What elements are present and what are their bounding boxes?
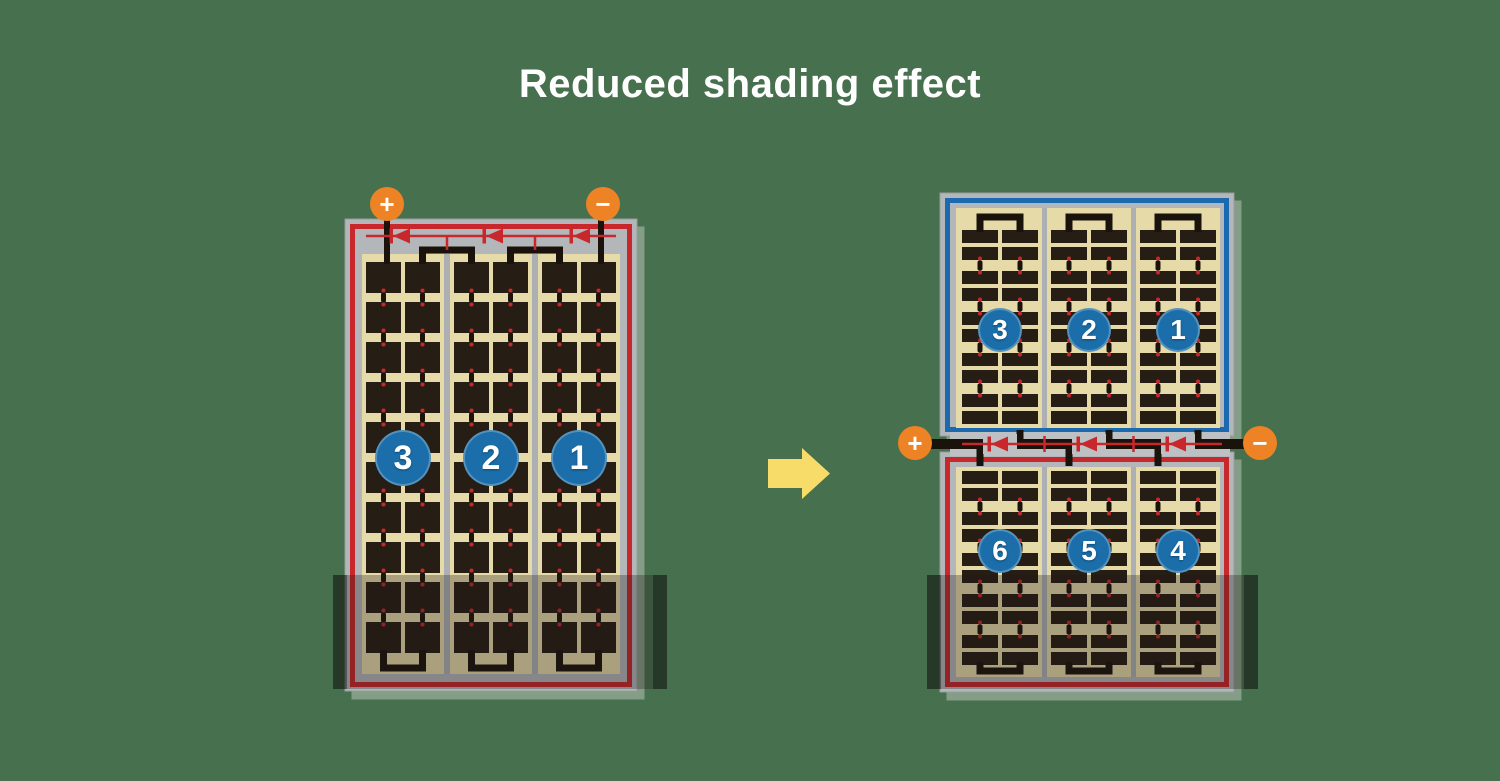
solder-dot [509, 543, 513, 547]
cell-connector [381, 533, 386, 543]
cell-connector [596, 493, 601, 503]
solar-cell [542, 502, 577, 533]
solder-dot [470, 423, 474, 427]
cell-connector [1107, 302, 1112, 312]
cell-connector [1018, 502, 1023, 512]
cell-connector [596, 533, 601, 543]
cell-connector [420, 293, 425, 303]
solar-cell [542, 382, 577, 413]
solder-dot [597, 343, 601, 347]
cell-connector [469, 533, 474, 543]
solder-dot [1196, 312, 1200, 316]
solder-dot [597, 329, 601, 333]
solar-cell [405, 502, 440, 533]
solder-dot [1156, 271, 1160, 275]
diode-bar-icon [1166, 437, 1170, 452]
cell-connector [1067, 261, 1072, 271]
solder-dot [509, 529, 513, 533]
solder-dot [509, 569, 513, 573]
cell-connector [508, 293, 513, 303]
left-negative-terminal: − [586, 187, 620, 221]
solar-cell [454, 542, 489, 573]
half-cell [1140, 471, 1176, 484]
solder-dot [597, 289, 601, 293]
cell-connector [1107, 502, 1112, 512]
solder-dot [1196, 271, 1200, 275]
cell-connector [1156, 502, 1161, 512]
right-bottom-circuit-5: 5 [1067, 529, 1111, 573]
solar-cell [366, 342, 401, 373]
solder-dot [1018, 512, 1022, 516]
solder-dot [558, 329, 562, 333]
solder-dot [978, 312, 982, 316]
solar-cell [581, 262, 616, 293]
diode-bar-icon [988, 437, 992, 452]
solar-cell [493, 262, 528, 293]
solder-dot [382, 383, 386, 387]
solder-dot [597, 543, 601, 547]
cell-connector [1018, 261, 1023, 271]
cell-connector [1067, 302, 1072, 312]
cell-connector [381, 333, 386, 343]
solar-cell [542, 542, 577, 573]
solar-cell [405, 542, 440, 573]
cell-connector [557, 413, 562, 423]
solar-cell [493, 542, 528, 573]
solder-dot [470, 569, 474, 573]
cell-connector [381, 373, 386, 383]
half-cell [1002, 411, 1038, 424]
solder-dot [1196, 353, 1200, 357]
right-top-circuit-1: 1 [1156, 308, 1200, 352]
solder-dot [597, 529, 601, 533]
solder-dot [421, 383, 425, 387]
cell-connector [596, 333, 601, 343]
right-top-divider-1 [1042, 208, 1047, 428]
half-cell [962, 471, 998, 484]
solder-dot [558, 569, 562, 573]
solder-dot [1107, 271, 1111, 275]
cell-connector [557, 493, 562, 503]
left-circuit-2: 2 [463, 430, 519, 486]
solar-cell [581, 502, 616, 533]
solar-cell [405, 382, 440, 413]
solder-dot [509, 383, 513, 387]
right-top-circuit-2: 2 [1067, 308, 1111, 352]
solder-dot [978, 353, 982, 357]
solar-cell [581, 542, 616, 573]
solar-cell [366, 502, 401, 533]
half-cell [1140, 411, 1176, 424]
solder-dot [470, 529, 474, 533]
solder-dot [470, 303, 474, 307]
solder-dot [1018, 353, 1022, 357]
solder-dot [470, 503, 474, 507]
solder-dot [1018, 298, 1022, 302]
cell-connector [1018, 343, 1023, 353]
solder-dot [1067, 512, 1071, 516]
solar-cell [493, 342, 528, 373]
solder-dot [1156, 394, 1160, 398]
solder-dot [421, 503, 425, 507]
solder-dot [382, 543, 386, 547]
right-positive-terminal: + [898, 426, 932, 460]
cell-connector [1196, 261, 1201, 271]
solder-dot [1067, 394, 1071, 398]
solder-dot [382, 303, 386, 307]
solder-dot [382, 409, 386, 413]
solder-dot [978, 380, 982, 384]
cell-connector [508, 413, 513, 423]
cell-connector [381, 493, 386, 503]
solar-cell [405, 262, 440, 293]
solar-cell [493, 302, 528, 333]
cell-connector [557, 373, 562, 383]
solder-dot [421, 289, 425, 293]
solder-dot [558, 383, 562, 387]
cell-connector [420, 373, 425, 383]
solder-dot [421, 343, 425, 347]
cell-connector [420, 333, 425, 343]
solder-dot [597, 303, 601, 307]
solder-dot [1018, 498, 1022, 502]
solder-dot [421, 303, 425, 307]
solar-cell [493, 502, 528, 533]
solder-dot [1196, 394, 1200, 398]
solder-dot [382, 289, 386, 293]
solder-dot [558, 409, 562, 413]
diode-bar-icon [390, 229, 394, 244]
solar-cell [366, 382, 401, 413]
solder-dot [558, 369, 562, 373]
solder-dot [1067, 353, 1071, 357]
solder-dot [1156, 257, 1160, 261]
solder-dot [597, 503, 601, 507]
solder-dot [470, 383, 474, 387]
solder-dot [509, 489, 513, 493]
diode-bar-icon [570, 229, 574, 244]
diode-bar-icon [483, 229, 487, 244]
solder-dot [1107, 298, 1111, 302]
solder-dot [509, 503, 513, 507]
solder-dot [978, 512, 982, 516]
solder-dot [1107, 312, 1111, 316]
solder-dot [1196, 298, 1200, 302]
solder-dot [1067, 298, 1071, 302]
solar-cell [454, 502, 489, 533]
solar-cell [454, 342, 489, 373]
solder-dot [597, 569, 601, 573]
solder-dot [978, 271, 982, 275]
left-circuit-3: 3 [375, 430, 431, 486]
solder-dot [558, 289, 562, 293]
half-cell [1002, 471, 1038, 484]
solder-dot [558, 503, 562, 507]
solder-dot [1196, 380, 1200, 384]
solar-cell [542, 342, 577, 373]
solder-dot [382, 503, 386, 507]
solder-dot [421, 423, 425, 427]
solder-dot [382, 423, 386, 427]
half-cell [1051, 471, 1087, 484]
cell-connector [978, 343, 983, 353]
solder-dot [1107, 498, 1111, 502]
cell-connector [508, 533, 513, 543]
solder-dot [470, 343, 474, 347]
half-cell [962, 411, 998, 424]
cell-connector [508, 493, 513, 503]
solder-dot [1107, 257, 1111, 261]
cell-connector [1067, 343, 1072, 353]
solder-dot [1067, 257, 1071, 261]
solder-dot [382, 569, 386, 573]
cell-connector [1156, 261, 1161, 271]
solar-cell [366, 542, 401, 573]
half-cell [1180, 471, 1216, 484]
right-top-divider-2 [1131, 208, 1136, 428]
solder-dot [1107, 353, 1111, 357]
cell-connector [1196, 302, 1201, 312]
cell-connector [381, 293, 386, 303]
solar-cell [542, 262, 577, 293]
solder-dot [382, 343, 386, 347]
cell-connector [1067, 384, 1072, 394]
right-negative-terminal: − [1243, 426, 1277, 460]
solder-dot [1107, 380, 1111, 384]
solar-cell [366, 302, 401, 333]
cell-connector [1156, 302, 1161, 312]
solder-dot [382, 329, 386, 333]
solder-dot [421, 369, 425, 373]
cell-connector [1156, 384, 1161, 394]
solder-dot [558, 529, 562, 533]
cell-connector [381, 413, 386, 423]
solder-dot [1107, 394, 1111, 398]
right-top-circuit-3: 3 [978, 308, 1022, 352]
solar-cell [581, 302, 616, 333]
solder-dot [1196, 498, 1200, 502]
half-cell [1051, 411, 1087, 424]
transition-arrow-icon [768, 448, 830, 499]
solder-dot [1156, 312, 1160, 316]
solder-dot [978, 394, 982, 398]
solder-dot [1067, 498, 1071, 502]
cell-connector [1018, 302, 1023, 312]
half-cell [1091, 471, 1127, 484]
cell-connector [469, 413, 474, 423]
cell-connector [557, 293, 562, 303]
half-cell [1180, 411, 1216, 424]
solder-dot [1018, 257, 1022, 261]
cell-connector [469, 373, 474, 383]
left-positive-terminal: + [370, 187, 404, 221]
solar-cell [454, 262, 489, 293]
solder-dot [1067, 312, 1071, 316]
solder-dot [421, 569, 425, 573]
solder-dot [1067, 271, 1071, 275]
solder-dot [1107, 512, 1111, 516]
solder-dot [470, 369, 474, 373]
half-cell [1091, 411, 1127, 424]
solder-dot [1156, 512, 1160, 516]
solar-cell [493, 382, 528, 413]
solder-dot [978, 257, 982, 261]
solar-cell [581, 382, 616, 413]
cell-connector [978, 384, 983, 394]
solder-dot [509, 329, 513, 333]
solar-cell [581, 342, 616, 373]
solder-dot [470, 543, 474, 547]
solder-dot [597, 423, 601, 427]
cell-connector [1107, 261, 1112, 271]
solder-dot [597, 409, 601, 413]
cell-connector [420, 413, 425, 423]
solder-dot [509, 303, 513, 307]
solder-dot [1067, 380, 1071, 384]
solder-dot [421, 543, 425, 547]
solar-cell [405, 342, 440, 373]
cell-connector [1196, 343, 1201, 353]
right-bottom-circuit-4: 4 [1156, 529, 1200, 573]
solder-dot [421, 329, 425, 333]
cell-connector [1196, 384, 1201, 394]
cell-connector [508, 333, 513, 343]
solder-dot [470, 489, 474, 493]
solar-cell [542, 302, 577, 333]
solder-dot [382, 529, 386, 533]
solder-dot [558, 423, 562, 427]
solder-dot [509, 343, 513, 347]
right-bottom-circuit-6: 6 [978, 529, 1022, 573]
cell-connector [469, 333, 474, 343]
solder-dot [978, 298, 982, 302]
cell-connector [1156, 343, 1161, 353]
solder-dot [1018, 394, 1022, 398]
cell-connector [1107, 384, 1112, 394]
cell-connector [978, 502, 983, 512]
cell-connector [1196, 502, 1201, 512]
cell-connector [469, 293, 474, 303]
shading-overlay-right [927, 575, 1258, 689]
solder-dot [382, 369, 386, 373]
solder-dot [509, 369, 513, 373]
solder-dot [597, 369, 601, 373]
cell-connector [557, 533, 562, 543]
solar-cell [405, 302, 440, 333]
cell-connector [1067, 502, 1072, 512]
solar-cell [454, 382, 489, 413]
solder-dot [509, 409, 513, 413]
cell-connector [1018, 384, 1023, 394]
cell-connector [596, 293, 601, 303]
solder-dot [1196, 512, 1200, 516]
cell-connector [1107, 343, 1112, 353]
cell-connector [508, 373, 513, 383]
cell-connector [420, 533, 425, 543]
solder-dot [470, 409, 474, 413]
solder-dot [509, 289, 513, 293]
solar-cell [454, 302, 489, 333]
cell-connector [596, 373, 601, 383]
cell-connector [596, 413, 601, 423]
diode-bar-icon [1077, 437, 1081, 452]
solder-dot [978, 498, 982, 502]
diagram-art [0, 0, 1500, 781]
cell-connector [469, 493, 474, 503]
solder-dot [421, 529, 425, 533]
solder-dot [1196, 257, 1200, 261]
cell-connector [420, 493, 425, 503]
solder-dot [1018, 380, 1022, 384]
solder-dot [597, 489, 601, 493]
solder-dot [1018, 271, 1022, 275]
solder-dot [421, 409, 425, 413]
solder-dot [470, 289, 474, 293]
solder-dot [470, 329, 474, 333]
solder-dot [382, 489, 386, 493]
solder-dot [558, 543, 562, 547]
solder-dot [1156, 353, 1160, 357]
shading-overlay-left [333, 575, 667, 689]
cell-connector [978, 261, 983, 271]
cell-connector [557, 333, 562, 343]
solder-dot [558, 303, 562, 307]
solder-dot [597, 383, 601, 387]
solder-dot [509, 423, 513, 427]
solder-dot [558, 343, 562, 347]
solder-dot [1156, 498, 1160, 502]
solder-dot [421, 489, 425, 493]
left-circuit-1: 1 [551, 430, 607, 486]
solder-dot [558, 489, 562, 493]
solder-dot [1156, 298, 1160, 302]
solder-dot [1018, 312, 1022, 316]
diagram: Reduced shading effect [0, 0, 1500, 781]
cell-connector [978, 302, 983, 312]
solar-cell [366, 262, 401, 293]
solder-dot [1156, 380, 1160, 384]
